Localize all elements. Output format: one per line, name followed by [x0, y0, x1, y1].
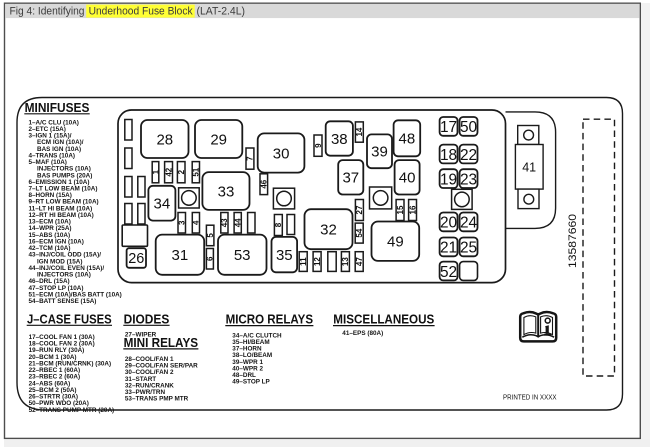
- svg-text:12: 12: [313, 257, 322, 266]
- svg-text:6: 6: [206, 256, 215, 261]
- svg-text:52–TRANS PUMP MTR (20A): 52–TRANS PUMP MTR (20A): [29, 407, 115, 414]
- svg-text:34: 34: [154, 196, 171, 213]
- svg-text:13587660: 13587660: [567, 214, 579, 268]
- svg-text:11: 11: [299, 257, 308, 266]
- svg-text:53: 53: [234, 247, 251, 264]
- svg-text:19: 19: [440, 171, 457, 188]
- svg-text:16: 16: [408, 205, 417, 214]
- svg-text:3: 3: [178, 220, 187, 225]
- svg-text:MINIFUSES: MINIFUSES: [25, 101, 90, 115]
- svg-text:4: 4: [192, 220, 201, 225]
- svg-text:Fig 4: Identifying: Fig 4: Identifying: [10, 6, 85, 18]
- svg-text:27: 27: [355, 205, 364, 214]
- svg-text:52: 52: [440, 264, 457, 281]
- svg-text:DIODES: DIODES: [124, 312, 170, 326]
- svg-text:40: 40: [399, 170, 416, 187]
- svg-text:Underhood Fuse Block: Underhood Fuse Block: [89, 6, 194, 18]
- svg-text:50: 50: [460, 119, 477, 136]
- svg-text:46: 46: [260, 179, 269, 188]
- svg-text:35: 35: [276, 247, 293, 264]
- svg-text:25: 25: [460, 240, 477, 257]
- svg-text:33: 33: [218, 183, 235, 200]
- svg-text:51: 51: [192, 167, 201, 176]
- svg-text:PRINTED IN XXXX: PRINTED IN XXXX: [503, 393, 557, 402]
- svg-text:37: 37: [342, 170, 359, 187]
- svg-text:29: 29: [210, 131, 227, 148]
- svg-text:32: 32: [320, 222, 337, 239]
- svg-text:MINI RELAYS: MINI RELAYS: [124, 336, 199, 350]
- svg-text:54–BATT SENSE (15A): 54–BATT SENSE (15A): [29, 298, 97, 305]
- svg-text:39: 39: [371, 144, 388, 161]
- svg-text:44: 44: [234, 218, 243, 227]
- svg-text:53–TRANS PMP MTR: 53–TRANS PMP MTR: [125, 396, 189, 403]
- svg-text:23: 23: [460, 171, 477, 188]
- svg-text:17: 17: [440, 119, 457, 136]
- svg-text:8: 8: [274, 222, 283, 227]
- svg-text:MISCELLANEOUS: MISCELLANEOUS: [333, 313, 434, 327]
- svg-text:22: 22: [460, 147, 477, 164]
- svg-text:14: 14: [355, 127, 364, 136]
- svg-text:38: 38: [331, 131, 348, 148]
- svg-text:MICRO RELAYS: MICRO RELAYS: [226, 313, 314, 327]
- svg-text:9: 9: [314, 143, 323, 148]
- svg-text:47: 47: [355, 257, 364, 266]
- svg-text:21: 21: [440, 240, 457, 257]
- svg-text:42: 42: [164, 167, 173, 176]
- svg-text:20: 20: [440, 215, 457, 232]
- svg-text:26: 26: [128, 251, 144, 267]
- svg-text:41–EPS (80A): 41–EPS (80A): [342, 330, 383, 337]
- svg-text:5: 5: [206, 233, 215, 238]
- svg-text:43: 43: [220, 218, 229, 227]
- svg-text:24: 24: [460, 215, 478, 232]
- svg-text:2: 2: [177, 169, 186, 174]
- svg-text:54: 54: [355, 228, 364, 237]
- svg-text:28: 28: [156, 131, 173, 148]
- svg-text:49–STOP LP: 49–STOP LP: [232, 379, 270, 386]
- svg-text:13: 13: [341, 257, 350, 266]
- svg-text:1: 1: [151, 169, 160, 174]
- svg-text:30: 30: [273, 145, 290, 162]
- svg-text:7: 7: [246, 156, 255, 161]
- svg-text:48: 48: [399, 131, 416, 148]
- svg-text:31: 31: [172, 247, 189, 264]
- svg-text:41: 41: [522, 161, 536, 175]
- svg-text:18: 18: [440, 147, 457, 164]
- svg-text:(LAT-2.4L): (LAT-2.4L): [197, 6, 246, 18]
- svg-text:J–CASE FUSES: J–CASE FUSES: [27, 312, 112, 326]
- svg-text:15: 15: [396, 205, 405, 214]
- svg-text:49: 49: [387, 234, 404, 251]
